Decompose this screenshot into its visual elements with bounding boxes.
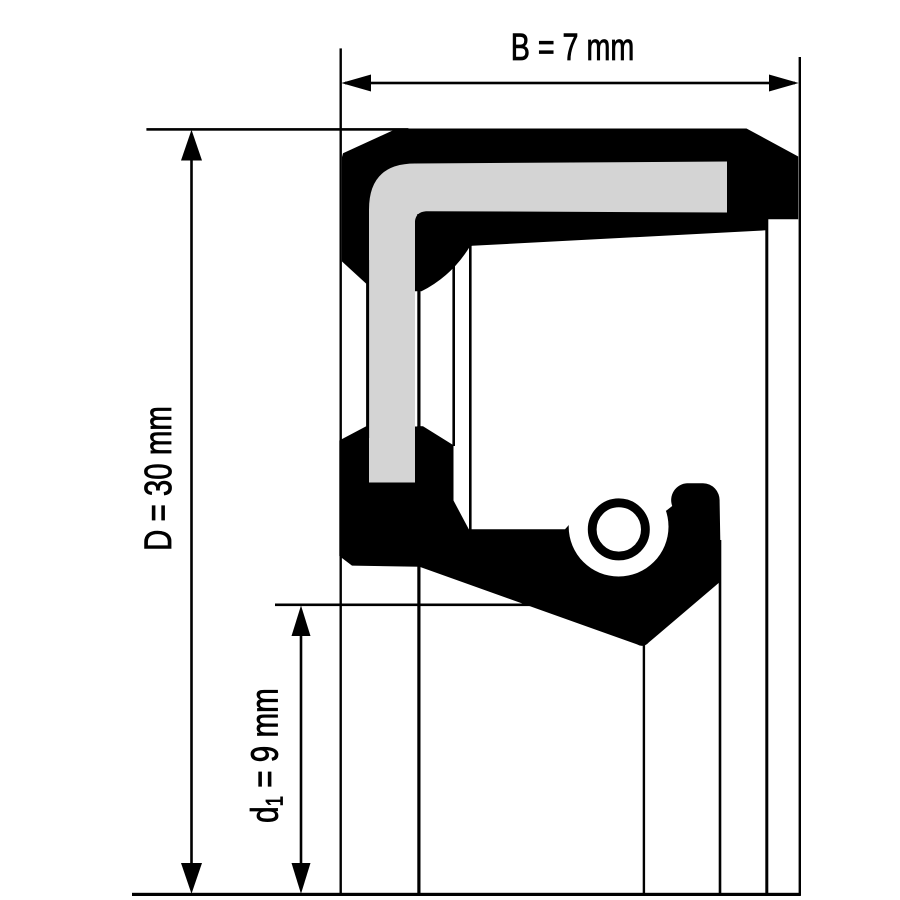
svg-text:D = 30 mm: D = 30 mm: [137, 406, 179, 551]
svg-text:B = 7 mm: B = 7 mm: [511, 27, 635, 69]
